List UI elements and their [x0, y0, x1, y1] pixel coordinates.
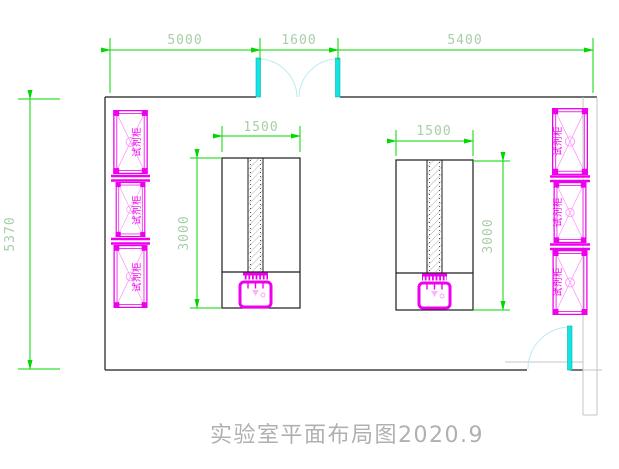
dim-label-5000: 5000: [167, 33, 202, 48]
single-door-bottom-right: [528, 326, 572, 370]
room-walls: [105, 97, 602, 415]
dim-label-1500: 1500: [416, 124, 451, 139]
lab-bench-left: [222, 158, 300, 308]
bench-hatched-strip: [248, 158, 263, 272]
drawing-title: 实验室平面布局图2020.9: [210, 423, 484, 448]
door-leaf: [568, 326, 573, 370]
door-leaf: [336, 58, 341, 97]
cabinet-label: 试剂柜: [131, 262, 143, 292]
dim-label-3000: 3000: [177, 215, 192, 250]
cabinet-column-right: 试剂柜 试剂柜 试剂柜: [550, 108, 590, 315]
cabinet-label: 试剂柜: [552, 126, 564, 156]
dimension-bench-left-width: 1500: [222, 120, 300, 152]
dimension-top: 5000 1600 5400: [110, 33, 593, 93]
door-swing-arc: [299, 59, 338, 97]
bench-hatched-strip: [427, 160, 442, 273]
cabinet-column-left: 试剂柜 试剂柜 试剂柜: [111, 110, 150, 308]
cabinet-label: 试剂柜: [131, 195, 143, 225]
floor-plan-canvas: 5000 1600 5400 5370 试剂柜 试剂柜 试剂柜 试剂柜 试剂柜 …: [0, 0, 619, 469]
door-swing-arc: [258, 59, 297, 97]
dim-label-5370: 5370: [3, 216, 18, 251]
door-leaf: [256, 58, 261, 97]
door-swing-arc: [528, 327, 570, 369]
dimension-bench-left-depth: 3000: [177, 158, 222, 308]
double-door-top: [256, 58, 340, 97]
dimension-left: 5370: [3, 99, 60, 369]
lab-bench-right: [396, 160, 473, 310]
cabinet-label: 试剂柜: [131, 127, 143, 157]
dimension-bench-right-depth: 3000: [473, 161, 510, 310]
dim-label-5400: 5400: [447, 33, 482, 48]
dim-label-1600: 1600: [281, 33, 316, 48]
drawing-area: 5000 1600 5400 5370 试剂柜 试剂柜 试剂柜 试剂柜 试剂柜 …: [0, 0, 619, 469]
dim-label-3000: 3000: [481, 218, 496, 253]
dimension-bench-right-width: 1500: [396, 124, 473, 156]
dim-label-1500: 1500: [243, 120, 278, 135]
cabinet-label: 试剂柜: [552, 197, 564, 227]
cabinet-label: 试剂柜: [552, 267, 564, 297]
